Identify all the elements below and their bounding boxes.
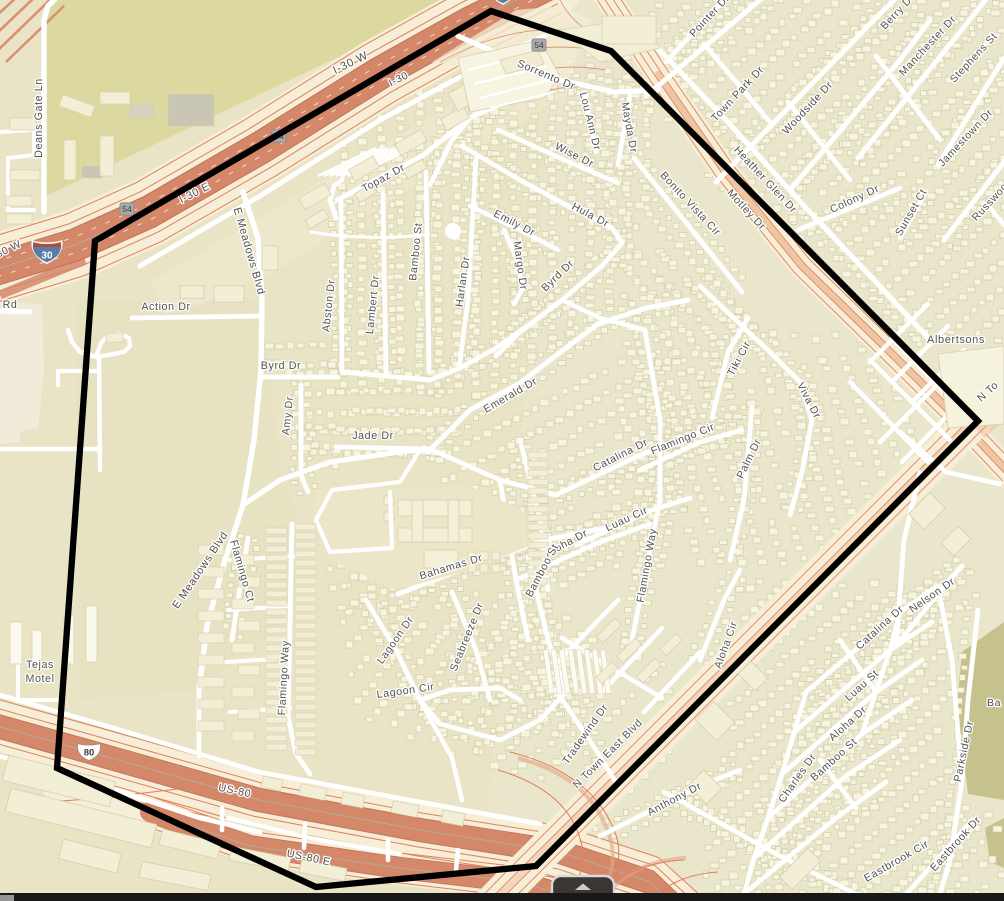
svg-text:30: 30 <box>41 250 53 261</box>
svg-text:Action Dr: Action Dr <box>141 301 190 313</box>
svg-text:54: 54 <box>122 204 132 214</box>
svg-text:Motel: Motel <box>25 673 54 685</box>
svg-text:Tejas: Tejas <box>26 659 54 671</box>
svg-text:30: 30 <box>498 0 508 2</box>
svg-text:Byrd Dr: Byrd Dr <box>261 360 301 372</box>
svg-text:Jade Dr: Jade Dr <box>352 430 394 442</box>
svg-text:54: 54 <box>534 40 544 50</box>
svg-text:80: 80 <box>84 748 95 759</box>
svg-text:Deans Gate Ln: Deans Gate Ln <box>33 78 45 158</box>
svg-text:Rd: Rd <box>3 299 18 311</box>
svg-text:Albertsons: Albertsons <box>927 334 985 346</box>
svg-text:Ba: Ba <box>987 697 1001 709</box>
